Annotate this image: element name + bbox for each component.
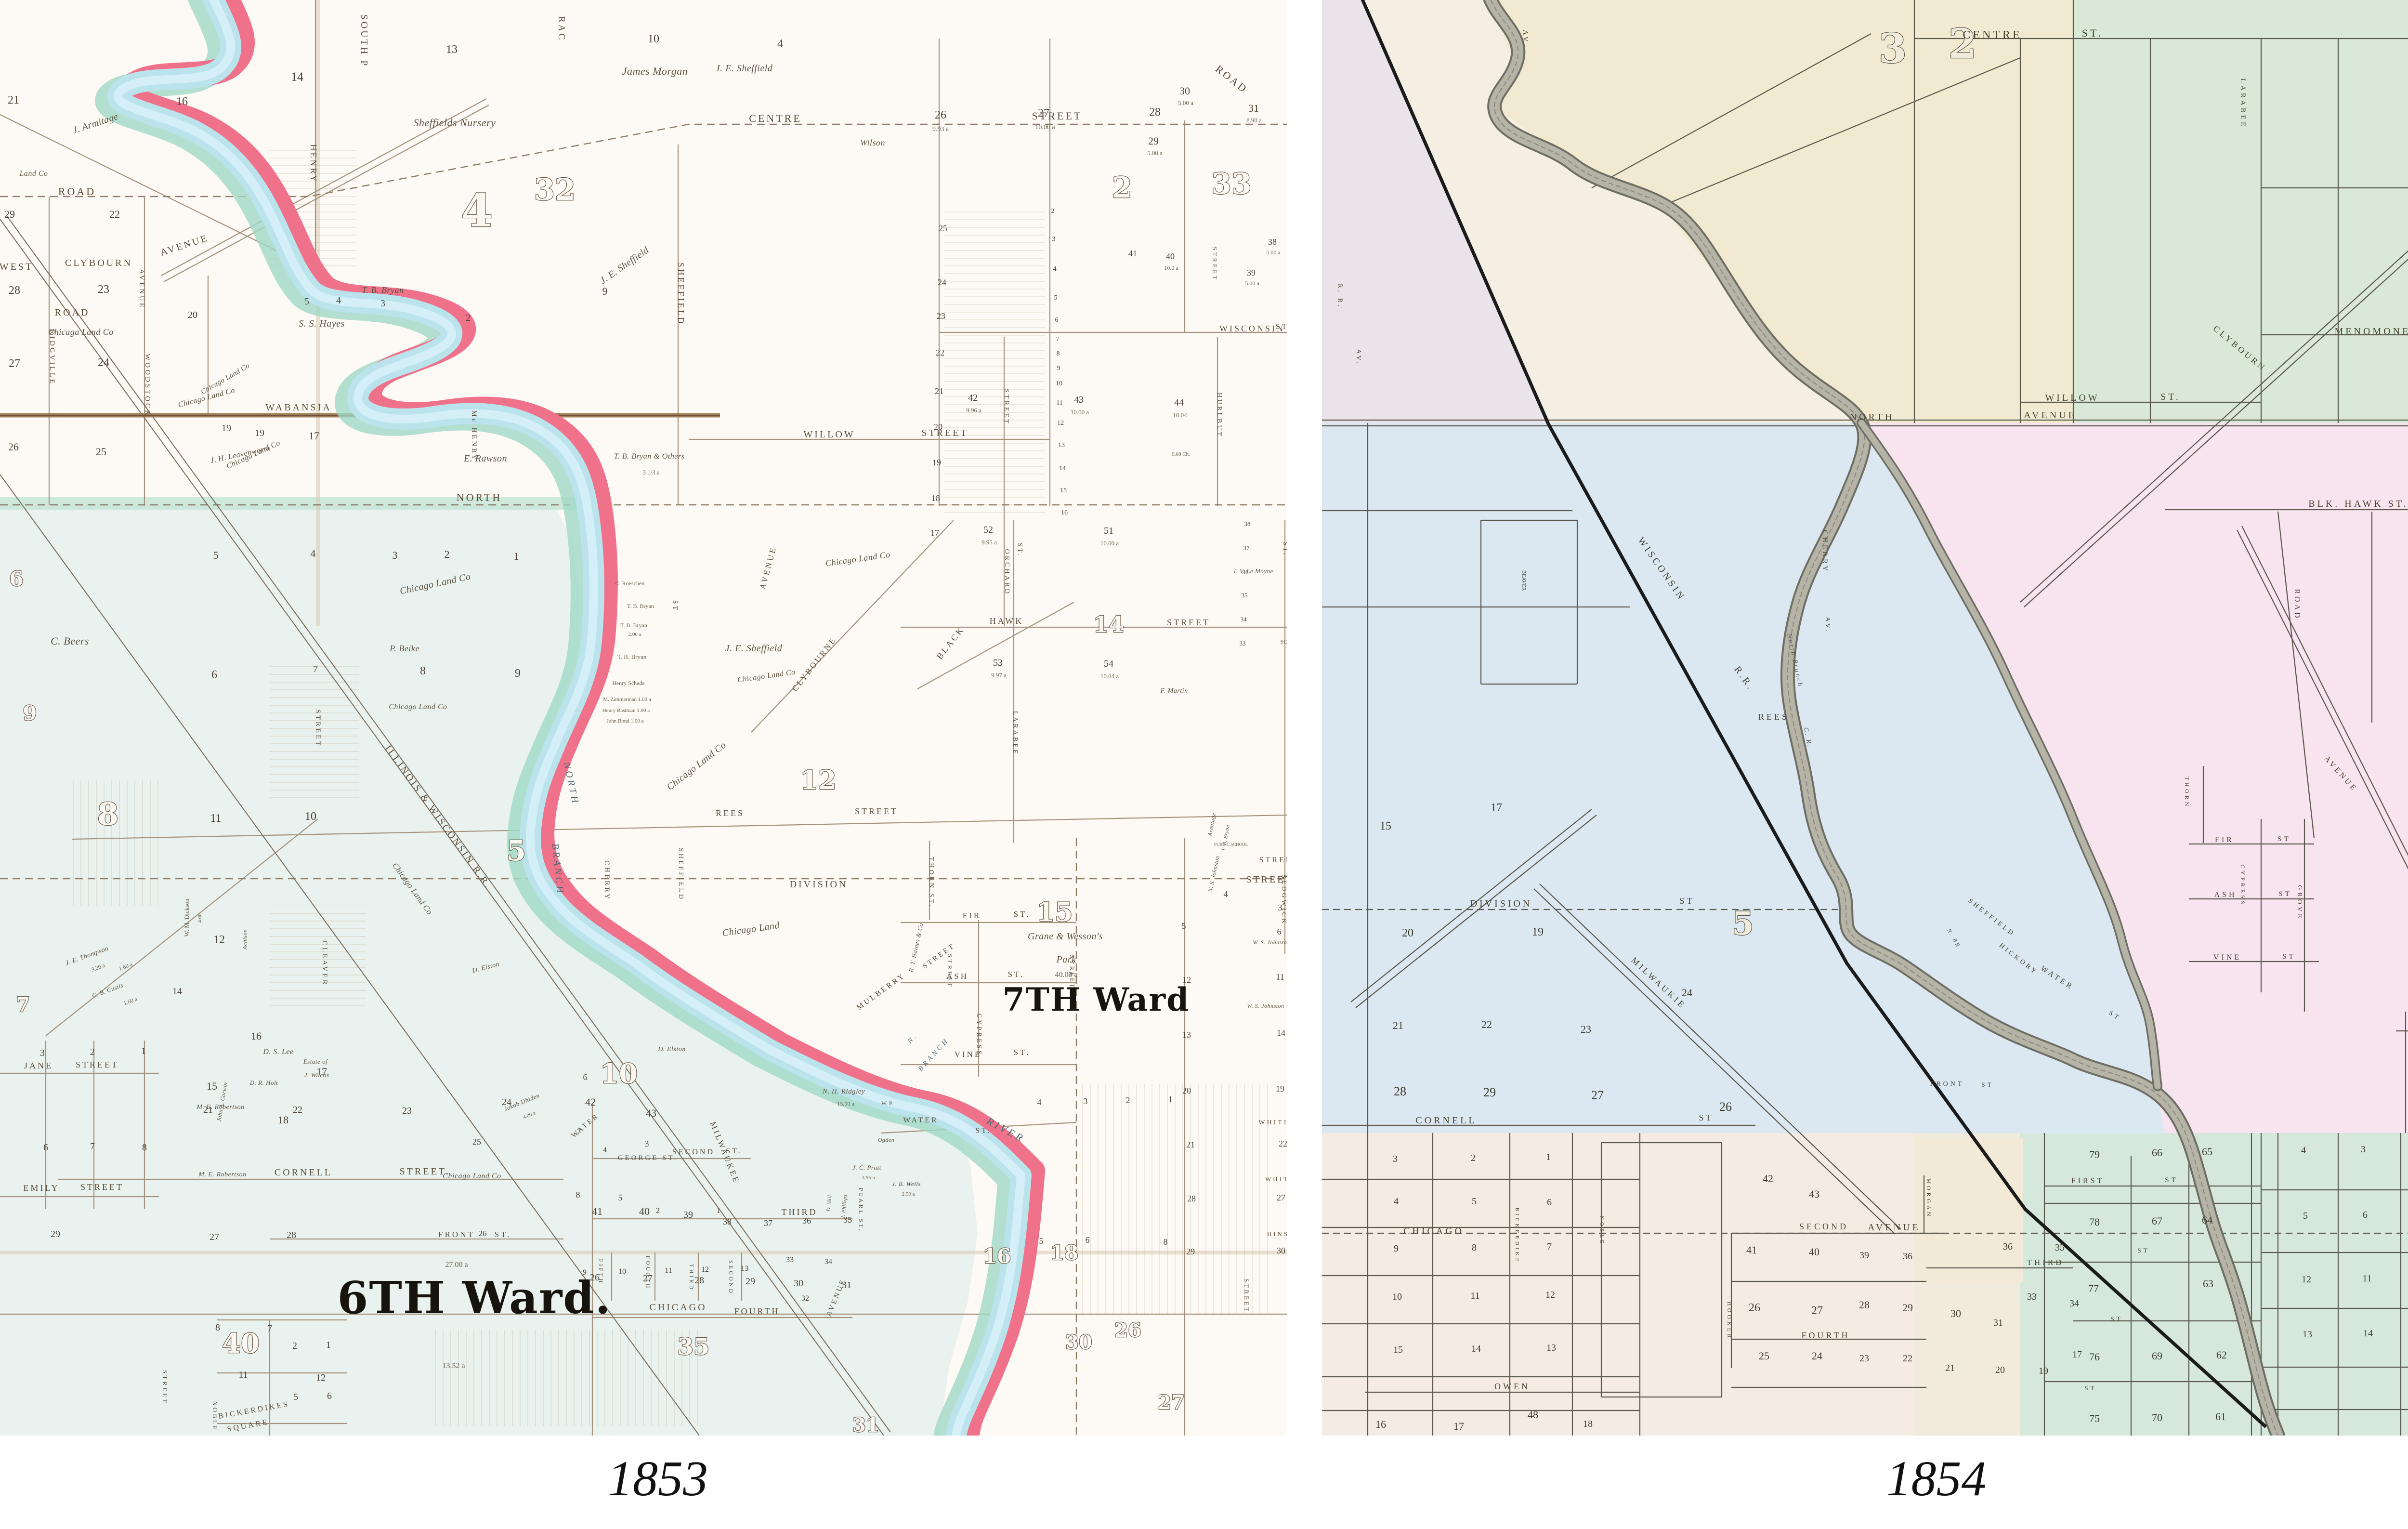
map-label: 70 xyxy=(2152,1411,2162,1424)
map-label: T. B. Bryan xyxy=(627,603,654,609)
map-label: 32 xyxy=(534,172,576,207)
map-label: 30 xyxy=(1950,1307,1961,1319)
map-label: 38 xyxy=(723,1217,732,1226)
map-label: LARABEE xyxy=(2239,79,2247,129)
map-label: 23 xyxy=(1581,1023,1591,1035)
map-label: D. R. Holt xyxy=(249,1079,278,1086)
map-label: 25 xyxy=(1759,1350,1769,1362)
map-label: 11 xyxy=(1470,1291,1479,1301)
map-label: STREET xyxy=(314,710,322,748)
map-label: 66 xyxy=(2152,1147,2162,1159)
map-label: ST xyxy=(2137,1247,2149,1254)
map-label: CORNELL xyxy=(275,1167,332,1178)
map-label: AVENUE xyxy=(138,269,145,309)
map-label: PUBLIC SCHOOL xyxy=(1214,842,1248,847)
map-label: THORN xyxy=(2184,777,2190,808)
map-label: 63 xyxy=(2203,1278,2213,1290)
map-label: J. E. Sheffield xyxy=(725,643,783,654)
map-label: 19 xyxy=(1532,926,1544,938)
map-label: 12 xyxy=(800,764,836,795)
map-label: 6 xyxy=(327,1391,332,1401)
map-label: 8 xyxy=(97,796,119,832)
map-label: 5 xyxy=(507,834,526,867)
map-label: 5 xyxy=(1732,905,1754,942)
map-label: 7TH Ward xyxy=(1003,981,1190,1018)
map-label: 21 xyxy=(1393,1019,1403,1031)
map-label: 13 xyxy=(446,43,458,56)
map-label: 29 xyxy=(4,208,15,220)
map-label: STREET. xyxy=(400,1166,450,1177)
map-label: 21 xyxy=(1945,1363,1955,1373)
map-label: SECOND xyxy=(728,1260,734,1295)
map-label: 22 xyxy=(109,208,120,220)
map-label: CHERRY xyxy=(1821,530,1829,573)
map-label: 5.00 a xyxy=(1178,99,1193,106)
map-label: 12 xyxy=(316,1372,326,1383)
map-label: Land Co xyxy=(19,170,48,178)
map-label: 14 xyxy=(2363,1328,2373,1339)
map-label: ST xyxy=(2282,953,2296,961)
map-label: 31 xyxy=(1993,1318,2003,1328)
map-label: 48 xyxy=(1528,1409,1538,1421)
map-label: 4 xyxy=(311,547,316,559)
map-label: 16 xyxy=(1061,509,1068,516)
map-label: 5.00 a xyxy=(1245,280,1259,287)
map-label: 27 xyxy=(1277,1193,1285,1202)
map-label: W. P. xyxy=(881,1100,893,1107)
map-label: 8.90 a xyxy=(1246,117,1262,124)
map-label: 30 xyxy=(1277,1246,1285,1255)
map-label: ST xyxy=(1679,896,1694,906)
map-label: 19 xyxy=(932,458,941,467)
map-label: 29 xyxy=(1483,1085,1496,1099)
map-label: 14 xyxy=(291,70,303,84)
map-label: ST xyxy=(2084,1384,2096,1392)
map-label: 28 xyxy=(9,284,20,297)
map-label: 67 xyxy=(2152,1215,2162,1227)
map-label: C. Roeschen xyxy=(615,580,645,587)
map-label: FOURTH xyxy=(645,1255,652,1290)
map-label: 16 xyxy=(251,1030,262,1042)
map-label: Chicago Land Co xyxy=(443,1172,501,1180)
map-label: WILLOW xyxy=(2045,393,2099,403)
map-label: HAWK xyxy=(990,616,1024,626)
map-label: 19 xyxy=(222,423,231,434)
map-label: ST. xyxy=(495,1230,511,1239)
map-label: 8 xyxy=(1057,350,1060,357)
map-label: 15 xyxy=(1393,1344,1403,1355)
map-label: 1 xyxy=(1168,1094,1173,1104)
map-label: 9 xyxy=(583,1268,587,1277)
map-label: 26 xyxy=(1719,1100,1732,1114)
map-label: 4 xyxy=(1053,265,1057,273)
map-label: 2 xyxy=(445,548,450,560)
map-label: 24 xyxy=(1812,1350,1822,1362)
map-label: LARABEE xyxy=(1011,711,1019,756)
map-label: CHICAGO xyxy=(1403,1226,1464,1237)
map-label: RIDGVILLE xyxy=(48,330,56,385)
map-label: 35 xyxy=(1242,592,1248,599)
map-label: 19 xyxy=(1276,1084,1284,1094)
map-label: 1 xyxy=(514,550,519,562)
map-label: 15 xyxy=(1036,896,1073,927)
map-label: 9 xyxy=(515,667,521,680)
map-label: D. Elston xyxy=(657,1046,685,1053)
map-label: 3 1/3 a xyxy=(642,469,660,476)
map-label: SCH xyxy=(1280,638,1287,645)
map-label: 17 xyxy=(2072,1349,2082,1360)
map-label: 51 xyxy=(1104,526,1113,536)
map-label: 12 xyxy=(1182,975,1191,985)
map-label: Estate of xyxy=(303,1058,328,1065)
map-label: 15 xyxy=(207,1080,217,1092)
map-label: 28 xyxy=(1394,1084,1406,1098)
map-label: 29 xyxy=(746,1276,755,1287)
map-label: 11 xyxy=(1276,972,1284,982)
map-label: 14 xyxy=(1093,611,1124,637)
map-label: 17 xyxy=(1491,802,1502,814)
map-label: 39 xyxy=(1247,268,1256,277)
map-label: 43 xyxy=(646,1107,656,1119)
map-label: 4 xyxy=(336,295,341,306)
map-label: 75 xyxy=(2089,1412,2100,1424)
map-label: 14 xyxy=(1471,1344,1481,1354)
map-label: 15 xyxy=(1060,487,1067,494)
map-label: 19 xyxy=(2039,1366,2048,1376)
map-label: 3 xyxy=(1879,25,1907,72)
map-label: ROAD xyxy=(58,185,96,198)
map-label: 69 xyxy=(2152,1350,2162,1362)
map-label: 4 xyxy=(1394,1196,1399,1207)
map-label: 27 xyxy=(1158,1391,1185,1414)
map-label: NOBLE xyxy=(1599,1216,1605,1246)
map-label: 10 xyxy=(1392,1292,1402,1302)
map-label: 16 xyxy=(1375,1418,1386,1430)
map-label: 10 xyxy=(618,1267,626,1276)
map-label: 9 xyxy=(1394,1243,1399,1254)
map-label: 5 xyxy=(2303,1211,2308,1221)
map-label: N. H. Ridgley xyxy=(822,1088,865,1095)
map-label: REES xyxy=(1758,712,1789,722)
map-label: WISCONSIN xyxy=(1219,324,1285,333)
map-label: 35 xyxy=(2055,1242,2065,1253)
map-label: 3 xyxy=(1393,1154,1398,1164)
map-label: SHEFFIELD xyxy=(676,262,686,325)
map-label: 30 xyxy=(1179,85,1190,97)
map-label: 9.08 Ch. xyxy=(1172,451,1190,457)
map-label: 15 xyxy=(1380,820,1391,832)
map-label: WOODSTOCK xyxy=(144,354,151,417)
map-label: W. S. Johnston xyxy=(1247,1002,1284,1009)
map-label: 2 xyxy=(1471,1153,1476,1163)
map-label: DIVISION xyxy=(1470,898,1532,909)
map-label: 29 xyxy=(1902,1302,1913,1314)
map-label: J. B. Wells xyxy=(892,1180,921,1187)
map-label: 5 xyxy=(618,1193,623,1202)
map-label: 13 xyxy=(1182,1030,1191,1040)
map-label: 20 xyxy=(934,422,942,432)
map-label: 13 xyxy=(741,1265,748,1273)
map-label: 13 xyxy=(1546,1343,1556,1353)
map-label: 37 xyxy=(1243,544,1250,552)
map-label: 6 xyxy=(2363,1210,2368,1220)
map-label: R. R. xyxy=(1337,284,1344,309)
map-label: 2 xyxy=(90,1047,95,1057)
map-label: REES xyxy=(716,808,745,818)
map-label: 2 xyxy=(466,313,471,323)
map-label: BEAVER xyxy=(1521,570,1527,591)
map-label: 8 xyxy=(576,1190,580,1199)
map-label: ST xyxy=(1276,323,1287,331)
map-label: T. B. Bryan xyxy=(620,622,647,629)
map-label: 9.93 a xyxy=(932,126,949,133)
map-label: 24 xyxy=(938,277,946,287)
map-label: ST xyxy=(2278,890,2292,898)
map-label: NORTH xyxy=(457,491,502,503)
map-label: 33 xyxy=(2027,1292,2037,1302)
map-label: 5 xyxy=(293,1392,298,1402)
map-label: 1 xyxy=(1546,1152,1551,1162)
map-label: 26 xyxy=(1749,1302,1760,1314)
map-label: 65 xyxy=(2202,1146,2212,1158)
map-label: Ogden xyxy=(878,1136,895,1143)
map-label: 19 xyxy=(255,428,264,438)
map-label: 43 xyxy=(1074,395,1084,405)
map-label: ST xyxy=(1699,1113,1714,1122)
map-label: 27 xyxy=(9,357,20,370)
map-label: 7 xyxy=(90,1141,95,1152)
map-label: 6 xyxy=(1086,1235,1090,1245)
map-label: 18 xyxy=(931,493,940,503)
map-label: JANE xyxy=(24,1061,53,1070)
map-label: 5 xyxy=(1054,294,1058,302)
map-label: HURLBUT xyxy=(1216,393,1223,438)
map-label: 7 xyxy=(1547,1241,1552,1252)
map-label: M. E. Robertson xyxy=(198,1171,246,1178)
map-label: FIR xyxy=(963,911,981,920)
map-label: 15.00 a xyxy=(837,1100,854,1107)
map-label: T. B. Bryan & Others xyxy=(614,452,685,461)
map-label: RAC xyxy=(556,16,567,41)
map-label: 10 xyxy=(600,1058,638,1090)
map-label: 29 xyxy=(51,1229,60,1239)
map-label: 77 xyxy=(2088,1282,2099,1294)
map-label: 6 xyxy=(1277,927,1282,936)
map-label: 22 xyxy=(1279,1139,1287,1148)
map-label: 34 xyxy=(824,1258,832,1266)
map-label: 22 xyxy=(1481,1018,1492,1030)
map-label: 3 xyxy=(2361,1144,2366,1155)
map-label: 33 xyxy=(1211,167,1252,201)
map-label: 25 xyxy=(472,1137,481,1147)
map-label: 52 xyxy=(983,525,993,535)
map-label: 24 xyxy=(98,356,109,369)
map-label: HOOKER xyxy=(1726,1302,1733,1340)
map-label: SECOND xyxy=(672,1148,715,1156)
map-label: 21 xyxy=(1186,1140,1195,1149)
map-label: 17 xyxy=(930,528,939,538)
map-label: 38 xyxy=(1244,520,1251,527)
map-label: 7 xyxy=(313,664,318,674)
map-label: 23 xyxy=(98,283,109,296)
map-label: 33 xyxy=(786,1256,794,1264)
comparison-figure: SOUTH PRACROADCENTRESTREETROAD2116141310… xyxy=(0,0,2408,1529)
map-label: 9 xyxy=(1057,365,1060,372)
map-label: 35 xyxy=(678,1333,710,1360)
map-label: 28 xyxy=(1859,1299,1870,1311)
map-label: 23 xyxy=(937,311,945,321)
map-label: ST. xyxy=(975,1127,991,1135)
map-label: 10 xyxy=(305,810,316,823)
map-label: AV. xyxy=(1521,30,1529,48)
map-label: WABANSIA xyxy=(265,402,332,413)
map-label: Chicago Land Co xyxy=(389,703,447,711)
map-label: 3.95 a xyxy=(862,1175,875,1181)
map-label: CLYBOURN xyxy=(65,258,132,268)
map-label: 40 xyxy=(1809,1246,1819,1258)
map-label: 1 xyxy=(326,1340,331,1350)
map-label: WILLOW xyxy=(803,429,855,440)
map-label: 41 xyxy=(1128,249,1137,258)
map-label: FRONT xyxy=(438,1230,475,1239)
map-label: 36 xyxy=(2003,1241,2013,1252)
map-label: BICKERDIKE xyxy=(1514,1208,1520,1264)
map-label: OWEN xyxy=(1494,1382,1530,1391)
map-label: EMILY xyxy=(23,1183,59,1193)
map-label: 30 xyxy=(1065,1331,1092,1354)
map-label: 21 xyxy=(203,1105,213,1115)
map-label: CHICAGO xyxy=(649,1302,707,1313)
map-label: HENRY xyxy=(309,144,318,183)
map-label: 42 xyxy=(968,393,978,403)
map-label: 27 xyxy=(1038,107,1049,119)
map-label: WHIT xyxy=(1265,1175,1287,1183)
map-label: 42 xyxy=(1763,1173,1773,1185)
map-label: ROAD xyxy=(2293,589,2301,620)
map-label: MORGAN xyxy=(1925,1178,1932,1218)
map-label: 29 xyxy=(1148,135,1159,147)
map-label: AVENUE xyxy=(2024,410,2077,421)
map-label: CHERRY xyxy=(603,860,611,901)
map-label: 8 xyxy=(1472,1242,1477,1253)
map-label: 2 xyxy=(1949,20,1976,67)
map-label: 3 xyxy=(393,549,398,561)
map-label: 11 xyxy=(210,812,221,825)
map-label: 18 xyxy=(278,1114,288,1126)
map-label: 12 xyxy=(1057,420,1064,427)
map-label: 26 xyxy=(935,109,946,121)
map-label: 6 xyxy=(43,1142,48,1153)
map-label: 16 xyxy=(176,95,188,108)
map-label: T. B. Bryan xyxy=(362,285,404,295)
color-washes-1854 xyxy=(1322,0,2408,1436)
map-1853: SOUTH PRACROADCENTRESTREETROAD2116141310… xyxy=(0,0,1287,1436)
map-label: NORTH xyxy=(1850,412,1895,422)
map-label: 6 xyxy=(1055,316,1059,324)
map-label: STREET xyxy=(855,806,898,816)
map-label: 20 xyxy=(1402,927,1413,939)
map-label: 61 xyxy=(2215,1410,2226,1423)
map-label: T. B. Bryan xyxy=(617,653,647,660)
map-label: 34 xyxy=(2069,1298,2079,1309)
map-label: 1 xyxy=(141,1046,146,1056)
map-label: 22 xyxy=(1903,1353,1912,1364)
map-label: 4.00 xyxy=(197,913,203,923)
map-label: CLEAVER xyxy=(321,940,328,986)
map-label: 44 xyxy=(1174,397,1184,408)
map-label: 13 xyxy=(2303,1329,2312,1340)
map-label: FOURTH xyxy=(1802,1331,1850,1340)
map-label: 76 xyxy=(2089,1351,2100,1363)
map-label: 12 xyxy=(701,1265,709,1274)
map-label: 1 xyxy=(717,1207,720,1215)
map-label: 40 xyxy=(639,1205,650,1217)
map-label: 9.97 a xyxy=(991,672,1007,679)
map-label: 11 xyxy=(665,1266,672,1275)
map-label: 10.0 a xyxy=(1164,264,1178,271)
map-label: 10.04 a xyxy=(1100,672,1119,680)
map-label: STREET xyxy=(946,954,954,989)
map-label: 28 xyxy=(694,1275,704,1286)
map-label: 40 xyxy=(1166,251,1175,261)
map-label: STREET xyxy=(1211,247,1218,281)
map-label: SHEFFIELD xyxy=(677,848,684,901)
map-label: 64 xyxy=(2202,1214,2212,1226)
map-label: 25 xyxy=(939,224,947,233)
map-label: 32 xyxy=(801,1294,809,1303)
map-label: 40 xyxy=(222,1328,260,1359)
map-label: 2 xyxy=(1112,171,1132,205)
map-label: 5 xyxy=(1182,921,1186,931)
map-label: ST. xyxy=(1008,970,1025,979)
map-label: 5 xyxy=(304,296,309,307)
map-label: ASH xyxy=(2214,891,2237,899)
map-label: AV. xyxy=(1824,617,1831,633)
map-label: STREET xyxy=(80,1182,124,1192)
map-label: 27 xyxy=(1811,1305,1823,1317)
map-label: 27 xyxy=(209,1232,219,1242)
map-label: 22 xyxy=(293,1105,302,1115)
map-label: 2 xyxy=(656,1207,660,1215)
map-label: 2 xyxy=(1051,208,1055,215)
map-label: 79 xyxy=(2089,1148,2100,1160)
map-label: 23 xyxy=(402,1106,412,1116)
map-label: 26 xyxy=(8,441,19,453)
map-label: 10 xyxy=(1056,380,1062,387)
map-label: ST xyxy=(2277,835,2291,843)
map-label: 31 xyxy=(852,1414,879,1436)
map-label: FIR xyxy=(2215,836,2234,844)
map-label: 7 xyxy=(1056,336,1060,343)
map-label: 9.95 a xyxy=(982,539,997,546)
map-label: THIRD xyxy=(782,1207,818,1217)
map-label: Chicaga Land Co xyxy=(48,327,114,337)
map-1854: 323345CENTREST.WISCONSINMENOMONEEWILLOWS… xyxy=(1322,0,2408,1436)
map-label: 4 xyxy=(1224,889,1228,899)
map-label: THIRD xyxy=(688,1264,695,1292)
map-label: John Bond 1.00 a xyxy=(607,718,644,724)
map-label: DIVISION xyxy=(790,879,848,890)
map-label: 33 xyxy=(1240,640,1246,647)
map-label: 9 xyxy=(23,701,37,725)
map-label: F. Martin xyxy=(1160,687,1188,695)
map-label: CENTRE xyxy=(1963,29,2022,41)
map-label: J. E. Sheffield xyxy=(716,63,773,74)
map-label: 4 xyxy=(2301,1145,2306,1156)
map-label: GEORGE ST. xyxy=(618,1154,678,1162)
map-label: HINS xyxy=(1267,1230,1287,1238)
map-label: 12 xyxy=(1545,1290,1555,1300)
